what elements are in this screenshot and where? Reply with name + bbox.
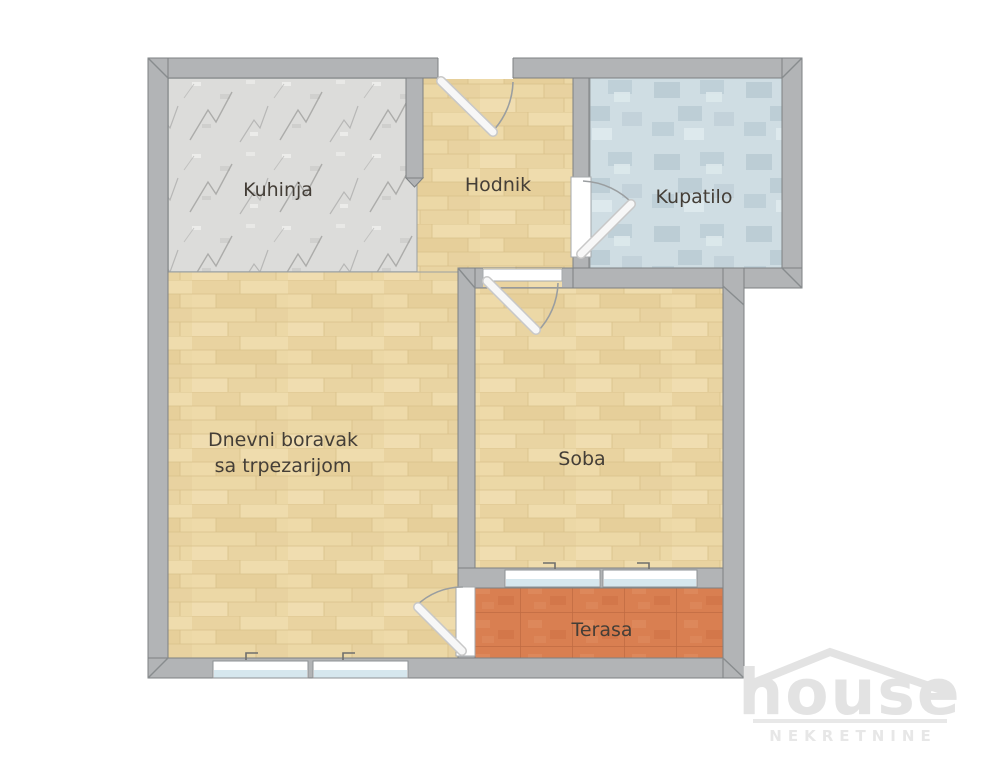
wall-kuhinja-hodnik [406, 78, 423, 178]
brand-name: house [738, 656, 961, 729]
brand-divider [753, 719, 947, 723]
door-soba-opening [483, 269, 562, 281]
window-dnevni-2 [313, 661, 408, 678]
floor-plan-page: Kuhinja Hodnik Kupatilo Dnevni boravak s… [0, 0, 988, 768]
wall-bathroom-bottom [565, 268, 802, 288]
room-label-hodnik: Hodnik [465, 174, 531, 196]
room-label-kuhinja: Kuhinja [243, 179, 313, 201]
room-label-dnevni-line2: sa trpezarijom [215, 455, 352, 477]
room-label-kupatilo: Kupatilo [656, 186, 733, 208]
room-label-dnevni-line1: Dnevni boravak [208, 429, 358, 451]
window-dnevni-1 [213, 661, 308, 678]
wall-right-bathroom [782, 58, 802, 288]
window-soba-1 [505, 570, 600, 587]
window-soba-2 [603, 570, 697, 587]
room-label-soba: Soba [558, 448, 605, 470]
room-kupatilo-floor [590, 78, 782, 268]
wall-left [148, 58, 168, 678]
brand-subtitle: NEKRETNINE [769, 727, 936, 745]
wall-right-soba-terrace [723, 268, 744, 678]
room-label-terasa: Terasa [570, 619, 632, 641]
room-kuhinja-floor [168, 78, 420, 272]
door-entrance-opening [438, 55, 513, 79]
floor-plan-svg: Kuhinja Hodnik Kupatilo Dnevni boravak s… [0, 0, 988, 768]
brand-logo: house NEKRETNINE [738, 652, 961, 745]
room-soba-floor [475, 288, 723, 568]
